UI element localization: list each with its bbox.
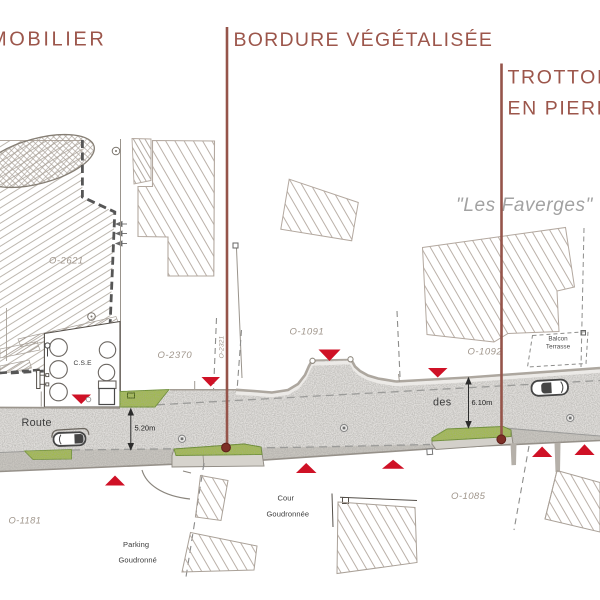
svg-text:TROTTOIR: TROTTOIR bbox=[508, 67, 600, 89]
svg-text:Goudronné: Goudronné bbox=[119, 556, 157, 565]
svg-text:O-2370: O-2370 bbox=[158, 350, 193, 361]
svg-text:6.10m: 6.10m bbox=[472, 398, 493, 407]
svg-text:O-2321: O-2321 bbox=[219, 336, 226, 359]
svg-text:Balcon: Balcon bbox=[548, 336, 568, 343]
svg-text:"Les Faverges": "Les Faverges" bbox=[456, 195, 594, 216]
svg-text:Route: Route bbox=[22, 417, 52, 429]
svg-text:C.S.E: C.S.E bbox=[74, 360, 93, 367]
svg-text:Cour: Cour bbox=[278, 494, 295, 503]
svg-text:O-1085: O-1085 bbox=[451, 491, 486, 502]
svg-text:O-1092: O-1092 bbox=[468, 347, 503, 358]
svg-text:Goudronnée: Goudronnée bbox=[267, 510, 310, 519]
svg-text:Parking: Parking bbox=[123, 540, 149, 549]
svg-text:Terrasse: Terrasse bbox=[546, 344, 571, 351]
svg-text:O-2621: O-2621 bbox=[49, 256, 84, 267]
svg-text:O-1181: O-1181 bbox=[9, 516, 42, 526]
svg-text:MOBILIER: MOBILIER bbox=[0, 29, 106, 51]
svg-text:O-1091: O-1091 bbox=[290, 327, 325, 338]
svg-text:BORDURE VÉGÉTALISÉE: BORDURE VÉGÉTALISÉE bbox=[234, 28, 494, 51]
svg-text:des: des bbox=[433, 397, 452, 409]
svg-text:EN PIERRE: EN PIERRE bbox=[508, 98, 600, 120]
svg-text:5.20m: 5.20m bbox=[135, 424, 156, 433]
